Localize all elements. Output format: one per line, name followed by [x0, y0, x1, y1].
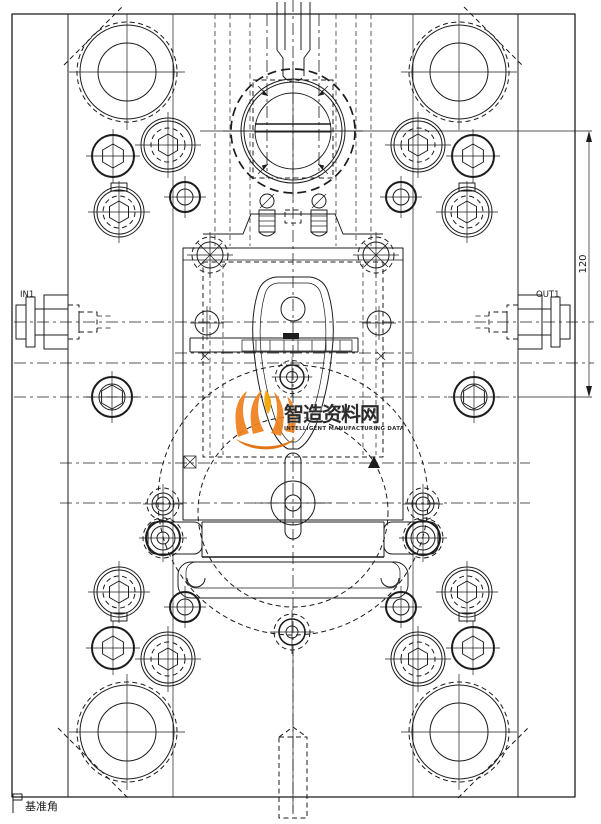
- watermark-subtitle: INTELLIGENT MANUFACTURING DATA: [284, 426, 405, 432]
- watermark-title: 智造资料网: [284, 402, 379, 426]
- center-support: [270, 610, 314, 818]
- datum-corner-label: 基准角: [25, 800, 58, 813]
- outlet-label: OUT1: [536, 290, 560, 300]
- inlet-label: IN1: [20, 290, 34, 300]
- drawing-page: IN1 OUT1 120 基准角 智造资料网 INTELLIGENT MANUF…: [0, 0, 601, 824]
- mold-assembly-drawing: IN1 OUT1 120 基准角 智造资料网 INTELLIGENT MANUF…: [0, 0, 601, 824]
- side-screw-left: [86, 371, 138, 423]
- dimension-120-text: 120: [578, 254, 589, 273]
- side-screw-right: [448, 371, 500, 423]
- dimension-120: [200, 131, 592, 397]
- watermark: 智造资料网 INTELLIGENT MANUFACTURING DATA: [235, 390, 404, 449]
